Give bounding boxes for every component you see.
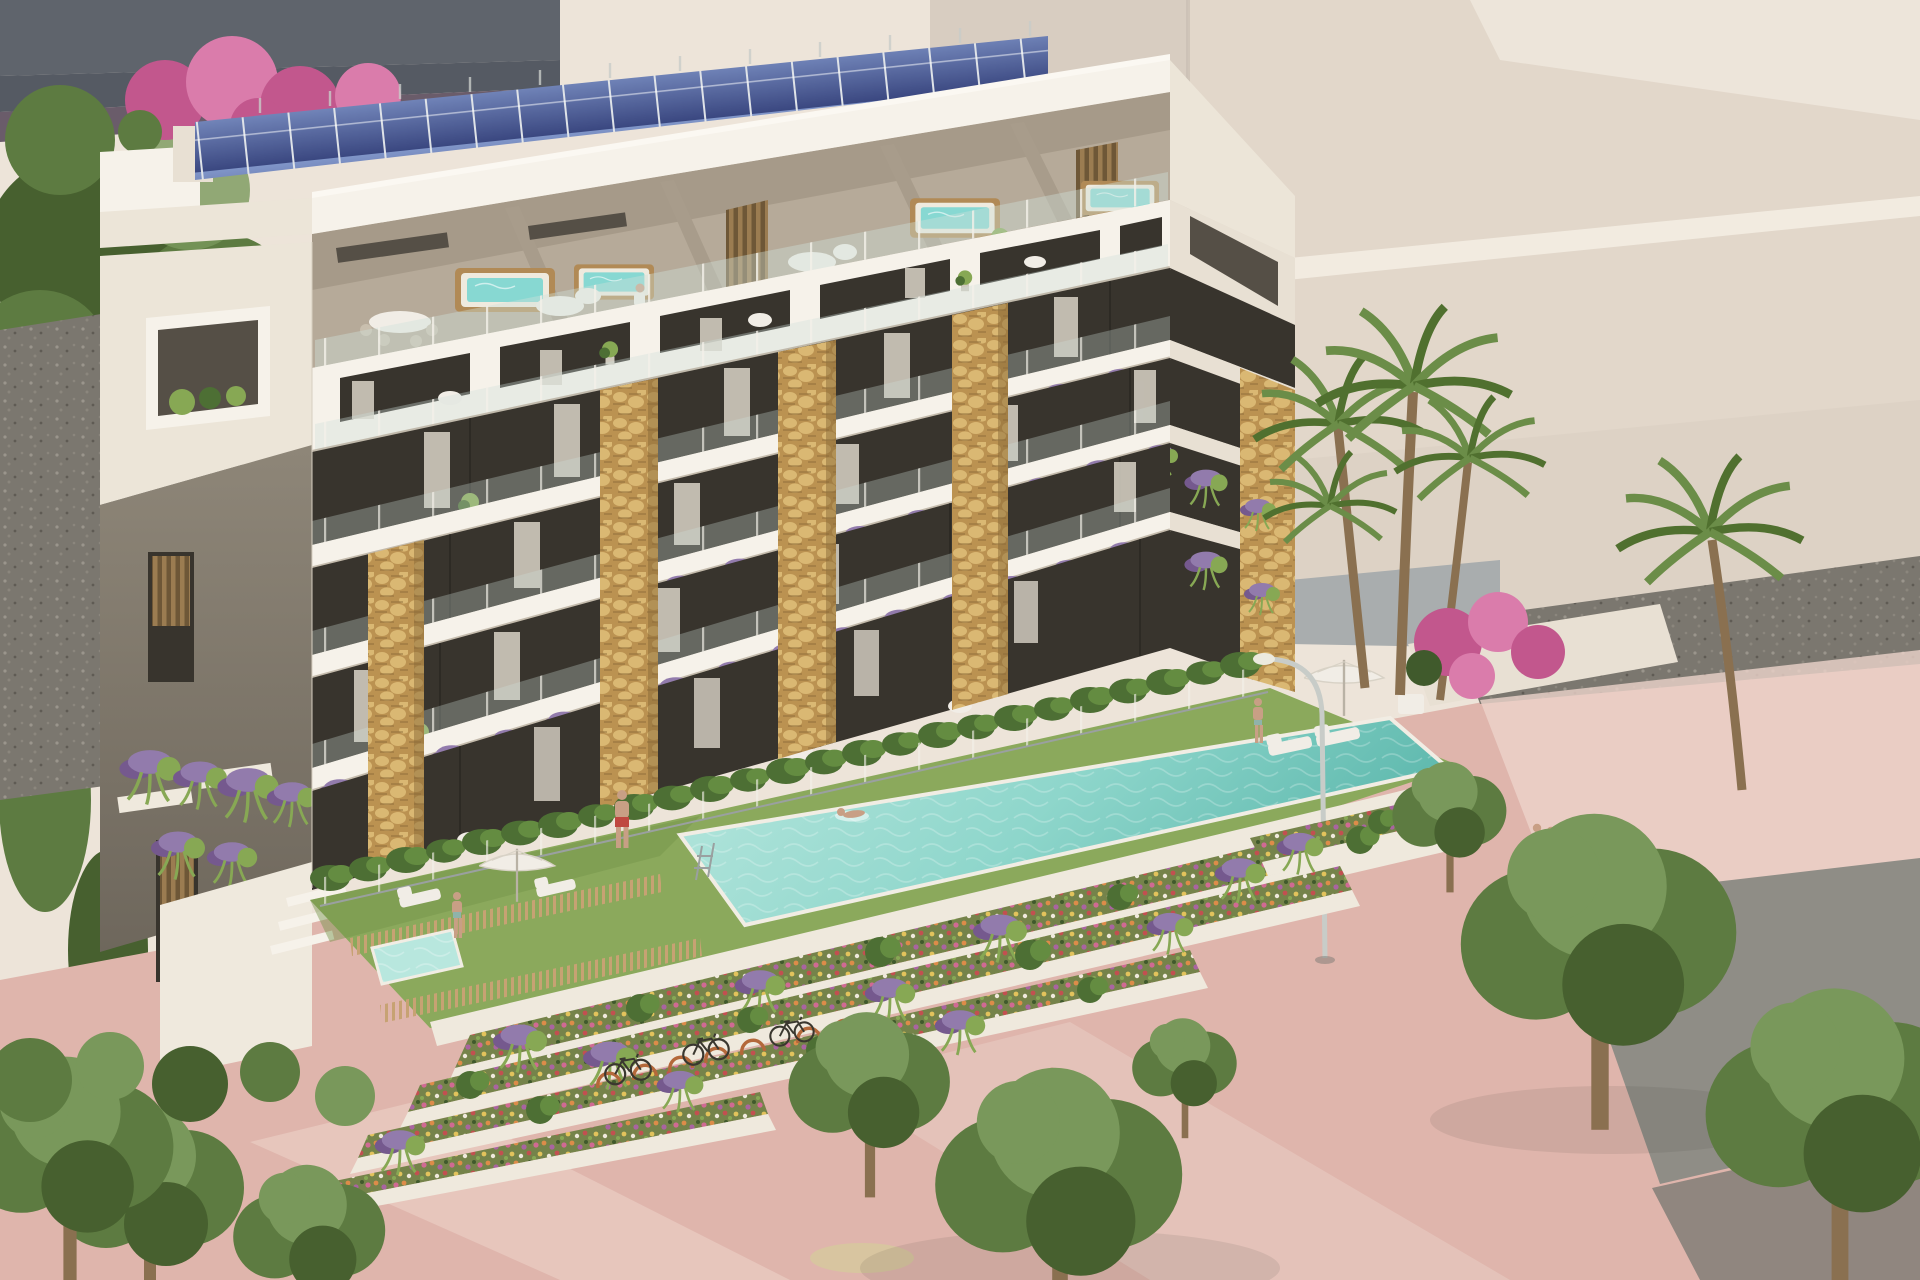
side-wall (100, 126, 346, 1078)
stone-pillar (952, 303, 1008, 710)
stone-pillar (600, 378, 658, 809)
side-slat-window (148, 552, 194, 682)
corner-stone-pillar (1240, 368, 1295, 692)
pool-planter (1398, 694, 1424, 714)
architectural-render: Residential complex rendering (0, 0, 1920, 1280)
side-window-opening (146, 306, 270, 430)
stone-pillar (778, 340, 836, 759)
stone-pillar (368, 540, 424, 874)
